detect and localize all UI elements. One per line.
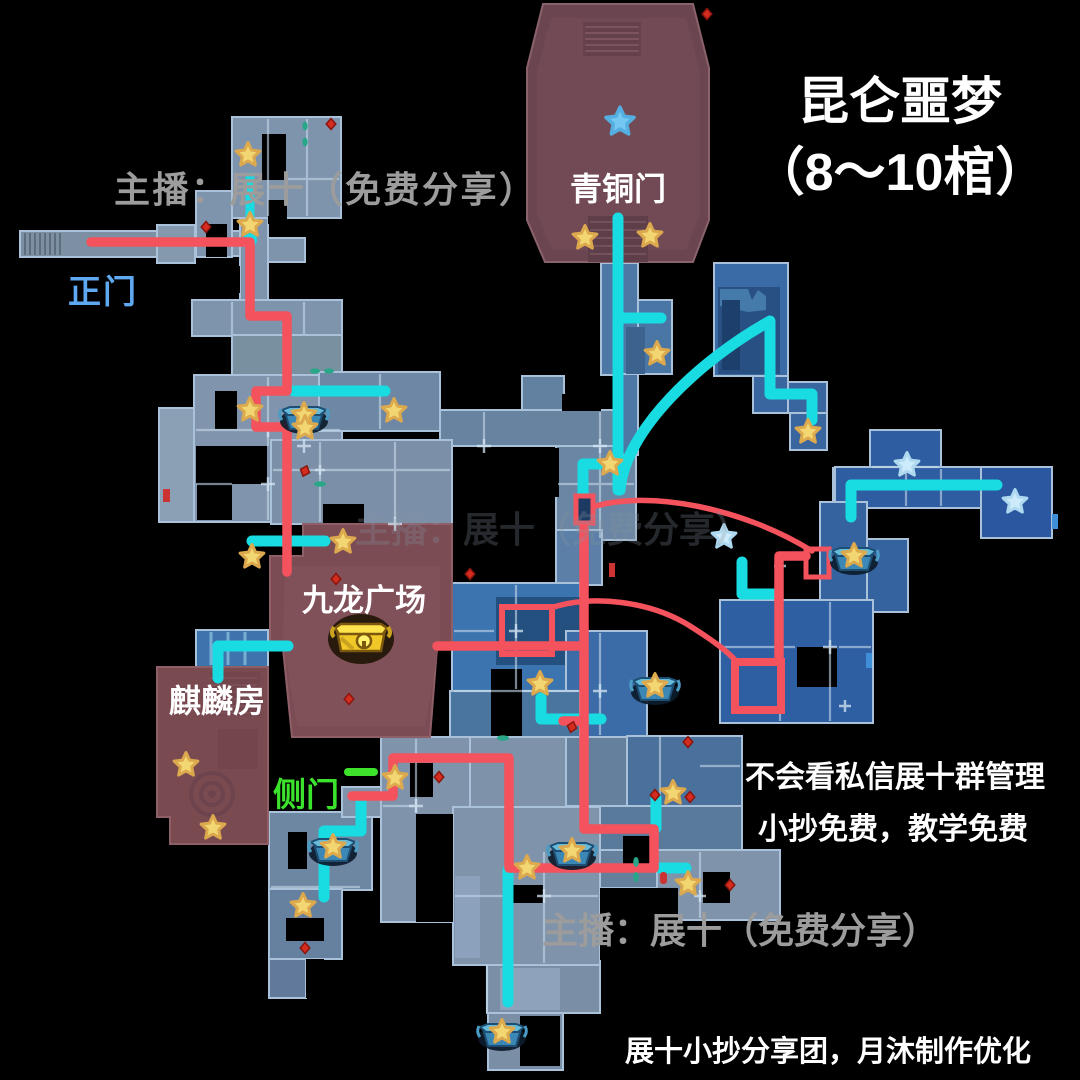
svg-text:九龙广场: 九龙广场 <box>302 583 426 618</box>
svg-text:小抄免费，教学免费: 小抄免费，教学免费 <box>758 812 1028 846</box>
svg-text:侧门: 侧门 <box>273 776 339 813</box>
svg-text:麒麟房: 麒麟房 <box>169 683 265 719</box>
svg-text:（8～10棺）: （8～10棺） <box>753 144 1048 202</box>
svg-text:主播：展十（免费分享）: 主播：展十（免费分享） <box>114 169 538 210</box>
svg-text:正门: 正门 <box>68 273 138 310</box>
svg-text:昆仑噩梦: 昆仑噩梦 <box>798 73 1002 130</box>
svg-text:展十小抄分享团，月沐制作优化: 展十小抄分享团，月沐制作优化 <box>625 1034 1031 1068</box>
svg-text:主播：展十（免费分享）: 主播：展十（免费分享） <box>542 910 938 951</box>
svg-text:主播：展十（免费分享）: 主播：展十（免费分享） <box>355 509 751 550</box>
svg-text:不会看私信展十群管理: 不会看私信展十群管理 <box>745 761 1045 794</box>
svg-text:青铜门: 青铜门 <box>570 171 666 207</box>
